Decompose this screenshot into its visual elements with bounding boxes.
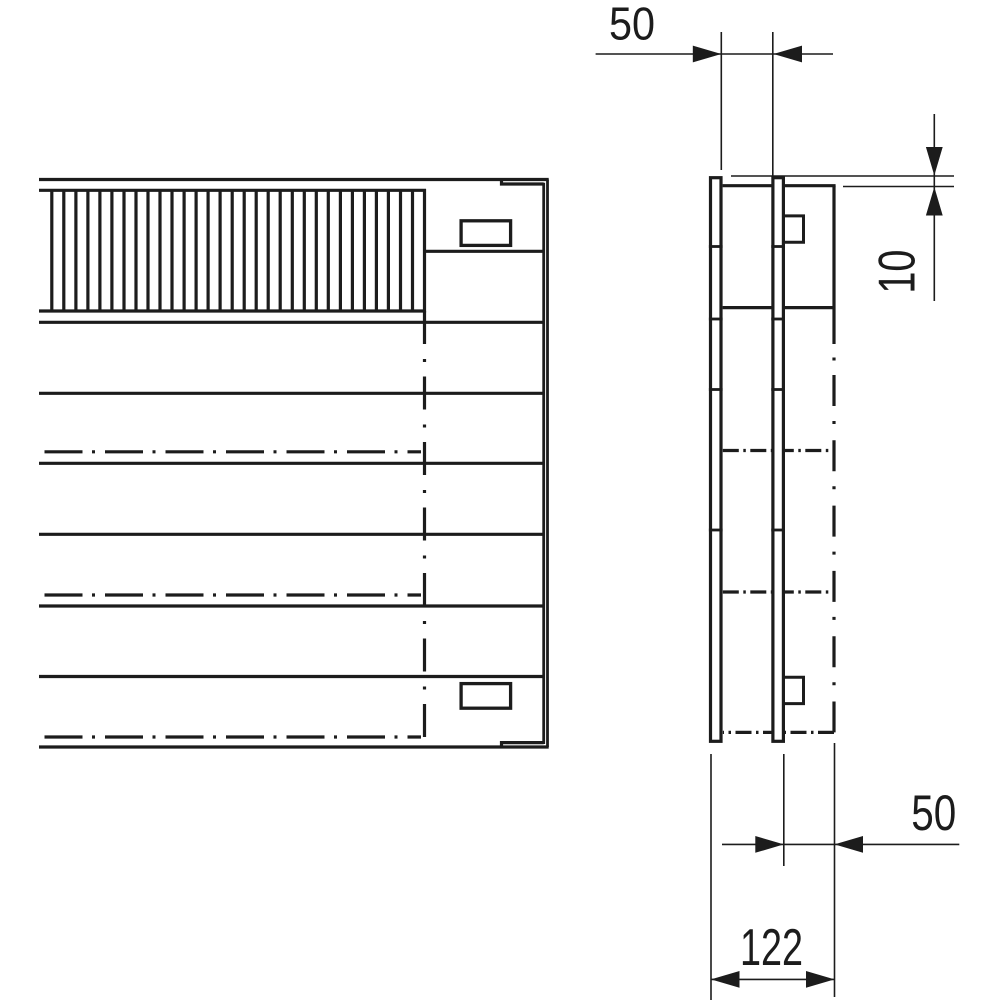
svg-text:50: 50 xyxy=(911,784,956,841)
svg-text:122: 122 xyxy=(740,919,803,977)
svg-text:10: 10 xyxy=(869,250,927,294)
svg-text:50: 50 xyxy=(609,0,655,50)
